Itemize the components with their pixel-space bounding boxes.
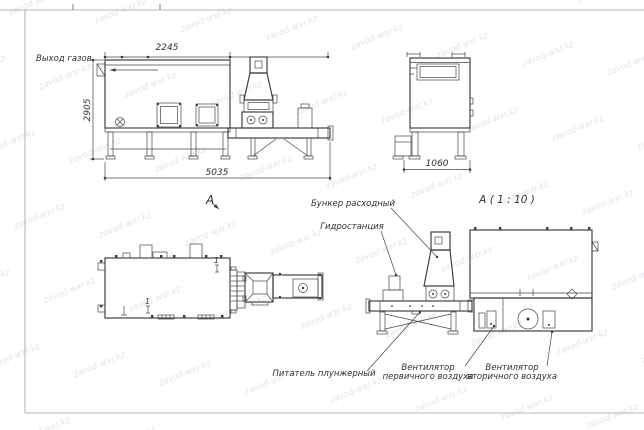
feeder-callout-text: Питатель плунжерный bbox=[272, 369, 376, 379]
dim-5035-text: 5035 bbox=[206, 168, 229, 178]
technical-drawing: zavod-wxr.kz zavod-wxr.kz Выход газов bbox=[0, 0, 644, 430]
hopper-callout-text: Бункер расходный bbox=[311, 199, 396, 209]
view-a-label: А bbox=[205, 193, 214, 207]
section-mark-1-text: 1 bbox=[214, 256, 219, 265]
gas-outlet-label: Выход газов bbox=[36, 54, 92, 64]
section-mark-1-text: 1 bbox=[145, 297, 150, 306]
drawing-sheet: zavod-wxr.kz zavod-wxr.kz Выход газов bbox=[0, 0, 644, 430]
dim-1060-text: 1060 bbox=[426, 159, 449, 169]
dim-2905-text: 2905 bbox=[83, 98, 93, 121]
hydraulic-station-callout-text: Гидростанция bbox=[320, 222, 384, 232]
primary-fan-callout-line2: первичного воздуха bbox=[383, 372, 474, 382]
detail-a-title: А ( 1 : 10 ) bbox=[478, 194, 535, 206]
dim-2245-text: 2245 bbox=[156, 43, 179, 53]
secondary-fan-callout-line2: вторичного воздуха bbox=[467, 372, 557, 382]
